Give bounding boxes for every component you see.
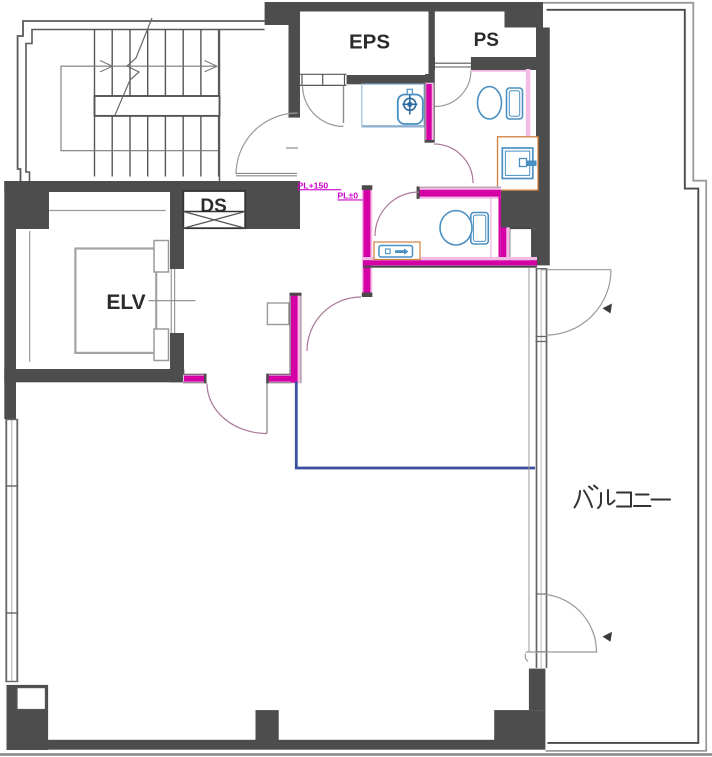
- svg-text:ELV: ELV: [106, 291, 145, 314]
- svg-text:PS: PS: [474, 30, 499, 51]
- svg-text:DS: DS: [200, 196, 226, 217]
- svg-text:PL+150: PL+150: [298, 181, 329, 191]
- svg-text:EPS: EPS: [349, 31, 390, 54]
- svg-text:PL±0: PL±0: [337, 191, 358, 201]
